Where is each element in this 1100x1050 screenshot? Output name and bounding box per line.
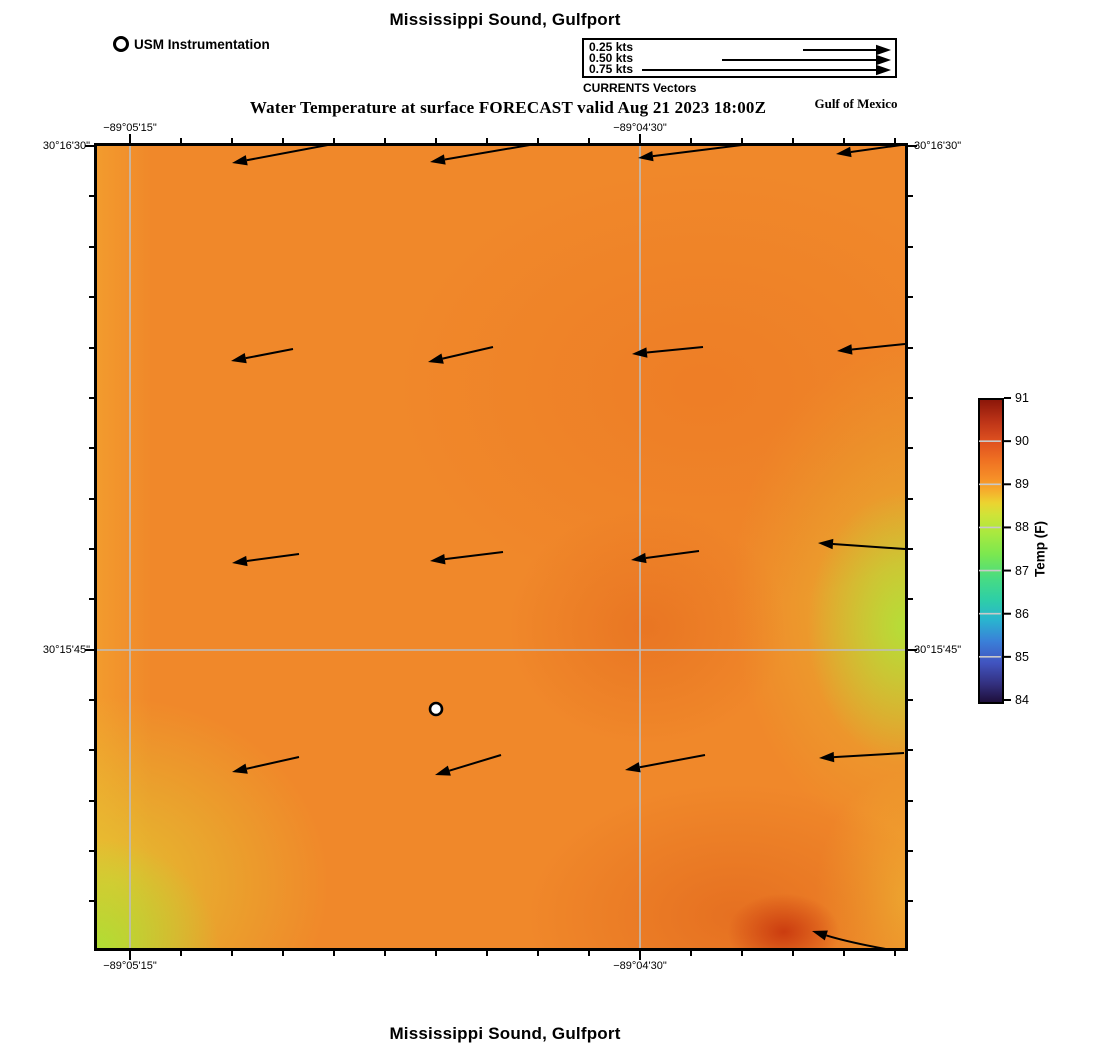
- vector-legend-entry: 0.75 kts: [589, 63, 633, 75]
- y-axis-label-right: 30°16'30": [914, 140, 961, 152]
- y-axis-label-left: 30°16'30": [0, 140, 90, 152]
- colorbar-tick-label: 84: [1015, 693, 1029, 707]
- page-title-top: Mississippi Sound, Gulfport: [389, 10, 620, 30]
- instrument-legend-label: USM Instrumentation: [134, 37, 270, 52]
- colorbar-tick-label: 91: [1015, 391, 1029, 405]
- colorbar-tick-label: 85: [1015, 650, 1029, 664]
- y-axis-label-right: 30°15'45": [914, 644, 961, 656]
- x-axis-label-top: −89°04'30": [613, 122, 667, 134]
- y-axis-label-left: 30°15'45": [0, 644, 90, 656]
- colorbar-tick-label: 90: [1015, 434, 1029, 448]
- colorbar-tick-label: 86: [1015, 607, 1029, 621]
- colorbar-tick-label: 87: [1015, 564, 1029, 578]
- colorbar-axis-label: Temp (F): [1033, 521, 1048, 577]
- plot-subtitle: Water Temperature at surface FORECAST va…: [250, 98, 766, 118]
- x-axis-label-bottom: −89°05'15": [103, 960, 157, 972]
- vector-legend-box: 0.25 kts 0.50 kts 0.75 kts: [582, 38, 897, 78]
- x-axis-label-bottom: −89°04'30": [613, 960, 667, 972]
- page-title-bottom: Mississippi Sound, Gulfport: [389, 1024, 620, 1044]
- forecast-plot-page: Mississippi Sound, Gulfport USM Instrume…: [0, 0, 1100, 1050]
- temperature-heatmap: [94, 143, 908, 951]
- x-axis-label-top: −89°05'15": [103, 122, 157, 134]
- vector-legend-caption: CURRENTS Vectors: [583, 81, 696, 95]
- region-label: Gulf of Mexico: [814, 96, 897, 112]
- instrument-legend-marker: [115, 38, 128, 51]
- temperature-colorbar: [978, 398, 1004, 704]
- colorbar-tick-label: 88: [1015, 520, 1029, 534]
- colorbar-tick-label: 89: [1015, 477, 1029, 491]
